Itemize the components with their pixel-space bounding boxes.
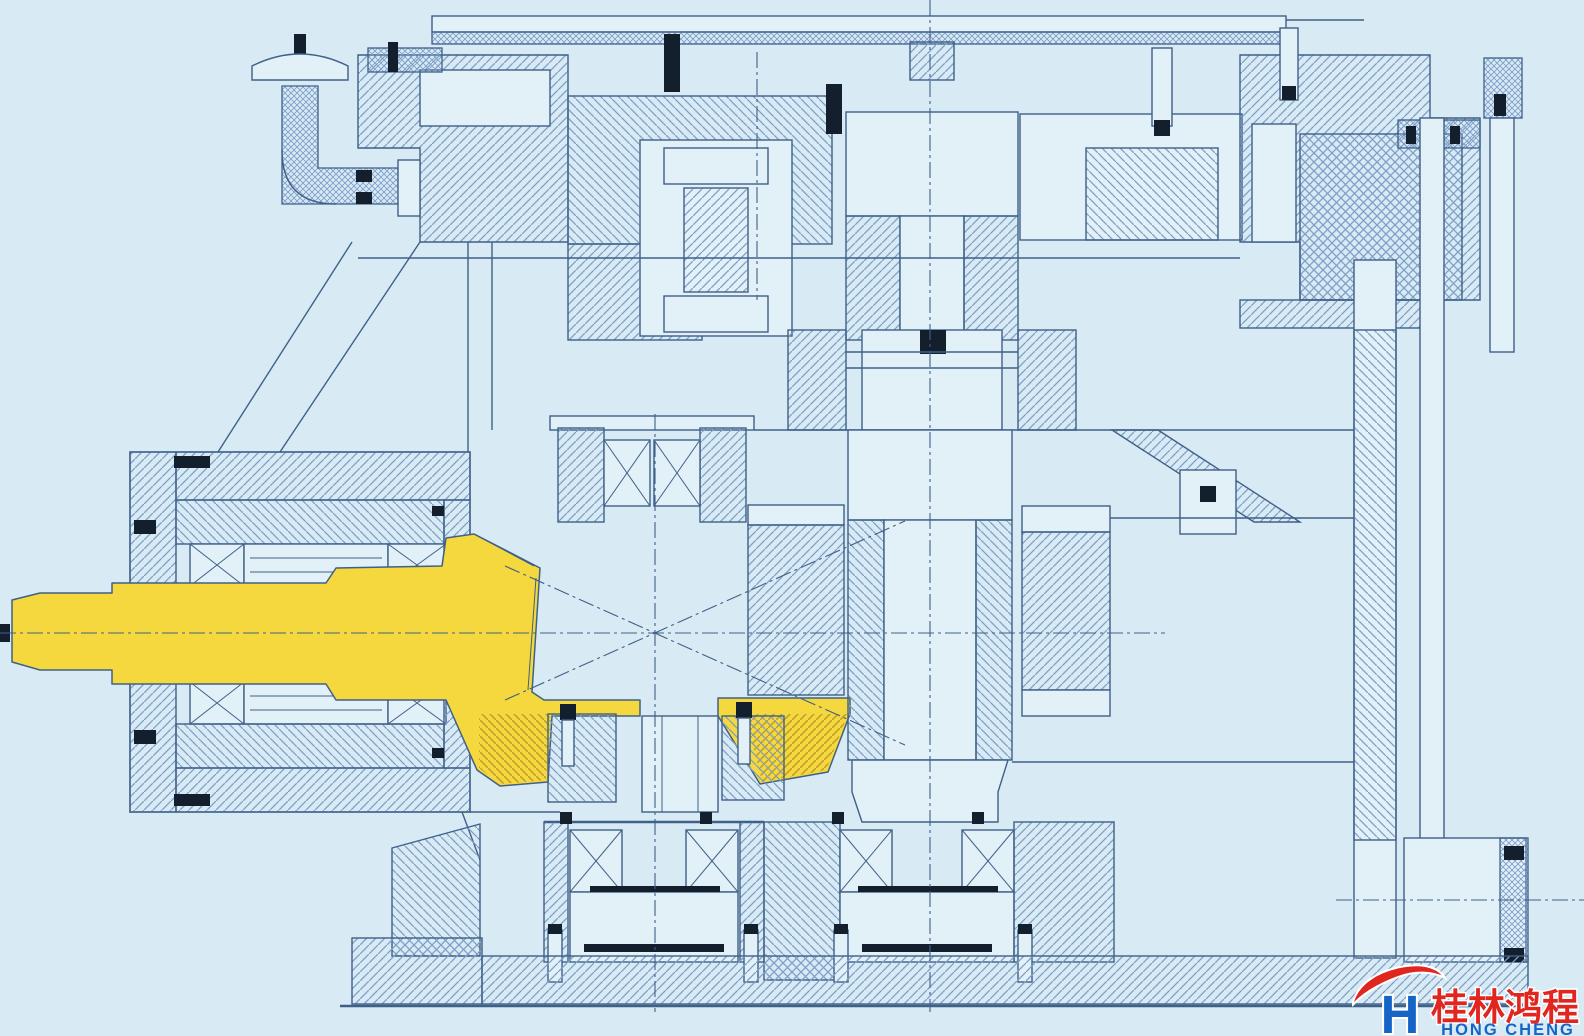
hongcheng-logo: H 桂林鸿程 HONG CHENG [1352,940,1584,1036]
logo-company-name-en: HONG CHENG [1441,1021,1575,1036]
gearbox-cross-section [0,0,1584,1036]
upper-bearing-left [190,544,244,586]
logo-letter: H [1381,985,1420,1036]
lower-bearing-left [190,682,244,724]
central-gear-shaft [748,330,1354,822]
pinion-teeth [479,714,550,784]
gearbox-sectional-drawing-page: H 桂林鸿程 HONG CHENG [0,0,1584,1036]
